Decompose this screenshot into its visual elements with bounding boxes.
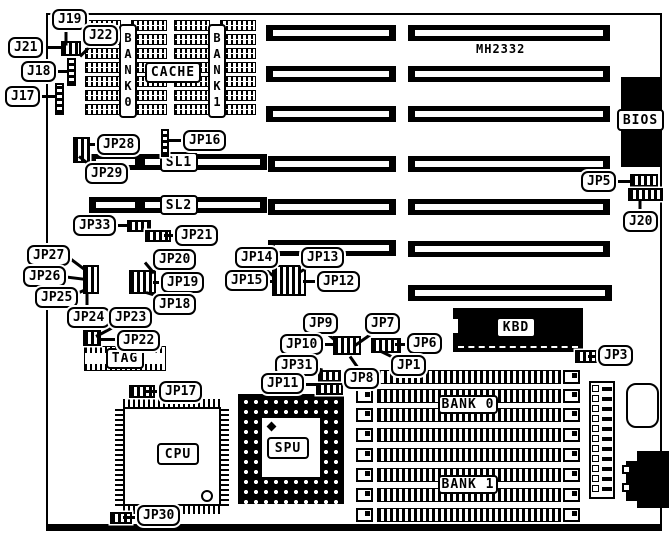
callout-tail-jp22 xyxy=(99,338,118,341)
simm-socket-5 xyxy=(377,448,561,462)
callout-tail-j21 xyxy=(47,46,63,49)
callout-jp9: JP9 xyxy=(303,313,338,334)
power-pin xyxy=(602,457,612,461)
cache-chip-bank0 xyxy=(85,90,121,101)
callout-jp23: JP23 xyxy=(109,307,152,328)
power-pin xyxy=(602,477,612,481)
jumper-jp16 xyxy=(161,129,169,157)
cache-label: CACHE xyxy=(145,62,201,83)
jumper-jp31 xyxy=(318,370,341,382)
cache-bank1-label: BANK1 xyxy=(208,24,226,118)
simm-bracket-right-3 xyxy=(563,408,580,422)
isa-slot-right-4 xyxy=(408,156,610,172)
motherboard-diagram: MH2332 BIOS KBD CPU SPU TAG BANK0 BANK1 … xyxy=(0,0,669,534)
power-pin xyxy=(602,427,612,431)
callout-jp6: JP6 xyxy=(407,333,442,354)
bios-label: BIOS xyxy=(617,109,664,131)
cache-chip-bank0 xyxy=(85,76,121,87)
din-notch-bottom xyxy=(622,483,631,492)
callout-jp5: JP5 xyxy=(581,171,616,192)
simm-bracket-right-2 xyxy=(563,389,580,403)
isa-slot-left-2 xyxy=(266,66,396,82)
callout-jp28: JP28 xyxy=(97,134,140,155)
jumper-jp11 xyxy=(316,383,343,395)
cache-chip-bank0 xyxy=(85,48,121,59)
pga-label: SPU xyxy=(267,437,309,459)
callout-j21: J21 xyxy=(8,37,43,58)
power-pin xyxy=(602,467,612,471)
callout-jp13: JP13 xyxy=(301,247,344,268)
power-pin-square xyxy=(592,485,599,492)
callout-tail-jp30 xyxy=(123,516,138,519)
simm-socket-4 xyxy=(377,428,561,442)
isa-slot-right-3 xyxy=(408,106,610,122)
simm-bracket-left-8 xyxy=(356,508,373,522)
simm-bracket-left-7 xyxy=(356,488,373,502)
isa-slot-right-1 xyxy=(408,25,610,41)
cache-chip-bank1 xyxy=(174,90,210,101)
cache-chip-bank1 xyxy=(174,20,210,31)
callout-jp33: JP33 xyxy=(73,215,116,236)
board-model-text: MH2332 xyxy=(476,42,525,56)
callout-jp25: JP25 xyxy=(35,287,78,308)
simm-bracket-right-1 xyxy=(563,370,580,384)
power-pin-square xyxy=(592,455,599,462)
callout-jp22: JP22 xyxy=(117,330,160,351)
callout-jp11: JP11 xyxy=(261,373,304,394)
tag-label: TAG xyxy=(106,348,144,369)
callout-jp29: JP29 xyxy=(85,163,128,184)
callout-jp24: JP24 xyxy=(67,307,110,328)
power-pin-square xyxy=(592,415,599,422)
cache-chip-bank0 xyxy=(85,62,121,73)
power-pin xyxy=(602,387,612,391)
callout-jp16: JP16 xyxy=(183,130,226,151)
keyboard-din-connector xyxy=(637,451,669,508)
power-pin-square xyxy=(592,475,599,482)
callout-tail-jp16 xyxy=(168,139,184,142)
isa-slot-right-6 xyxy=(408,241,610,257)
simm-bracket-left-4 xyxy=(356,428,373,442)
callout-jp8: JP8 xyxy=(344,368,379,389)
power-pin xyxy=(602,397,612,401)
simm-bracket-right-5 xyxy=(563,448,580,462)
power-pin-square xyxy=(592,465,599,472)
isa-slot-left-1 xyxy=(266,25,396,41)
simm-bracket-right-8 xyxy=(563,508,580,522)
callout-jp18: JP18 xyxy=(153,294,196,315)
isa-slot-left-3 xyxy=(266,106,396,122)
simm-bracket-left-6 xyxy=(356,468,373,482)
callout-jp1: JP1 xyxy=(391,355,426,376)
callout-j20: J20 xyxy=(623,211,658,232)
callout-tail-j17 xyxy=(42,95,57,98)
callout-j19: J19 xyxy=(52,9,87,30)
jumper-j17 xyxy=(55,83,64,115)
power-pin xyxy=(602,447,612,451)
cpu-pins-left xyxy=(115,407,123,506)
callout-jp12: JP12 xyxy=(317,271,360,292)
simm-bracket-right-4 xyxy=(563,428,580,442)
simm-socket-8 xyxy=(377,508,561,522)
power-pin-square xyxy=(592,435,599,442)
sl2-label: SL2 xyxy=(160,195,198,215)
callout-jp10: JP10 xyxy=(280,334,323,355)
jumper-jp5 xyxy=(630,174,658,187)
power-pin xyxy=(602,487,612,491)
cache-chip-bank1 xyxy=(174,104,210,115)
power-pin-square xyxy=(592,445,599,452)
cache-chip-bank1 xyxy=(174,48,210,59)
callout-jp19: JP19 xyxy=(161,272,204,293)
keyboard-connector-outline xyxy=(626,383,659,428)
callout-jp26: JP26 xyxy=(23,266,66,287)
cache-chip-bank0 xyxy=(85,104,121,115)
cpu-label: CPU xyxy=(157,443,199,465)
cpu-pins-right xyxy=(221,407,229,506)
callout-tail-j19 xyxy=(65,30,68,46)
power-pin-square xyxy=(592,405,599,412)
callout-jp17: JP17 xyxy=(159,381,202,402)
callout-jp14: JP14 xyxy=(235,247,278,268)
callout-jp3: JP3 xyxy=(598,345,633,366)
isa-slot-right-5 xyxy=(408,199,610,215)
callout-jp30: JP30 xyxy=(137,505,180,526)
callout-j18: J18 xyxy=(21,61,56,82)
simm-bracket-left-5 xyxy=(356,448,373,462)
isa-slot-left-4 xyxy=(268,156,396,172)
simm-bank0-label: BANK 0 xyxy=(438,395,498,414)
callout-j22: J22 xyxy=(83,25,118,46)
cpu-pin1-mark xyxy=(201,490,213,502)
power-pin-square xyxy=(592,385,599,392)
cache-chip-bank1 xyxy=(174,34,210,45)
cache-bank0-label: BANK0 xyxy=(119,24,137,118)
power-pin xyxy=(602,417,612,421)
callout-jp15: JP15 xyxy=(225,270,268,291)
simm-bank1-label: BANK 1 xyxy=(438,475,498,494)
power-pin xyxy=(602,407,612,411)
simm-bracket-right-7 xyxy=(563,488,580,502)
power-pin-square xyxy=(592,395,599,402)
simm-bracket-left-2 xyxy=(356,389,373,403)
callout-jp7: JP7 xyxy=(365,313,400,334)
simm-bracket-left-3 xyxy=(356,408,373,422)
power-pin xyxy=(602,437,612,441)
callout-tail-jp17 xyxy=(145,390,160,393)
callout-jp20: JP20 xyxy=(153,249,196,270)
callout-j17: J17 xyxy=(5,86,40,107)
kbd-label: KBD xyxy=(496,317,536,338)
callout-tail-jp12 xyxy=(303,280,318,283)
din-notch-top xyxy=(622,465,631,474)
callout-tail-j18 xyxy=(56,70,69,73)
isa-slot-right-7 xyxy=(408,285,612,301)
power-pin-square xyxy=(592,425,599,432)
callout-jp27: JP27 xyxy=(27,245,70,266)
jumper-j20 xyxy=(628,188,663,201)
callout-jp21: JP21 xyxy=(175,225,218,246)
simm-bracket-right-6 xyxy=(563,468,580,482)
isa-slot-left-5 xyxy=(268,199,396,215)
isa-slot-right-2 xyxy=(408,66,610,82)
